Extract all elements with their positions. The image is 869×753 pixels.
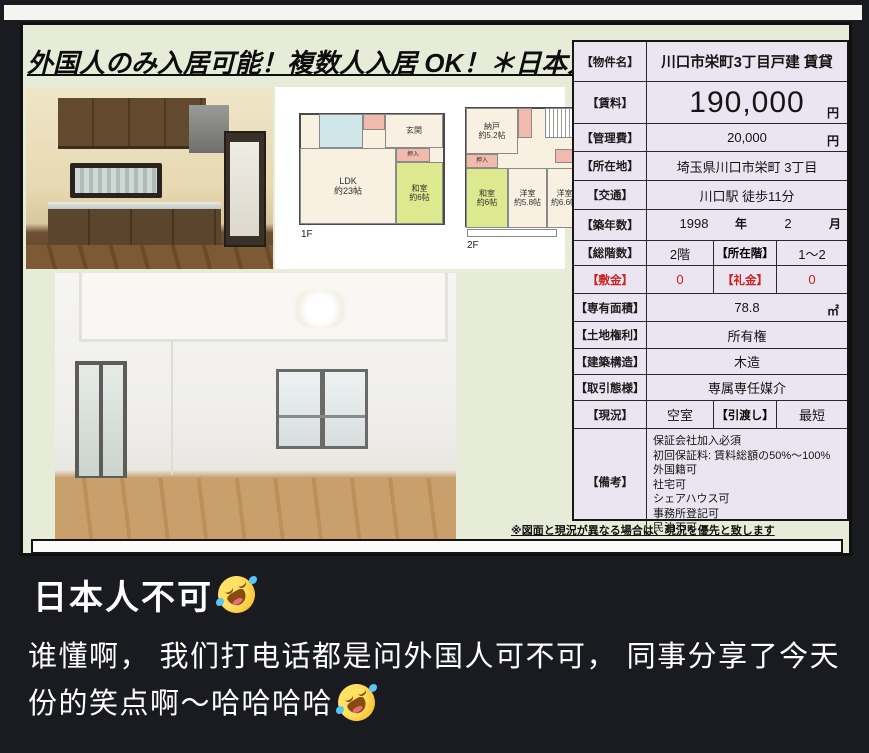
- row-property-name: 【物件名】 川口市栄町3丁目戸建 賃貸: [574, 42, 847, 82]
- row-remarks: 【備考】 保証会社加入必須 初回保証料: 賃料総額の50%～100% 外国籍可 …: [574, 429, 847, 536]
- row-transaction: 【取引態様】 専属専任媒介: [574, 375, 847, 401]
- property-spec-table: 【物件名】 川口市栄町3丁目戸建 賃貸 【賃料】 190,000 円 【管理費】…: [572, 40, 849, 521]
- caption-line2-text: 谁懂啊， 我们打电话都是问外国人可不可， 同事分享了今天份的笑点啊～哈哈哈哈: [28, 641, 840, 720]
- total-floors-label: 【総階数】: [574, 241, 647, 265]
- status-value: 空室: [647, 401, 713, 428]
- living-window-left: [75, 361, 127, 481]
- kitchen-window: [70, 163, 161, 198]
- living-wood-floor: [55, 478, 456, 539]
- floorplan-2f: 納戸 約5.2帖 押入 和室 約6帖 洋室 約5.8帖 洋室 約6.6帖: [465, 107, 581, 227]
- floorplan-1f-wc: [363, 114, 385, 130]
- floorplan-2f-closet-top: [518, 108, 532, 138]
- area-value: 78.8: [734, 300, 759, 315]
- built-year-cell: 1998 年 2 月: [647, 210, 847, 240]
- located-floor-value: 1～2: [777, 241, 847, 265]
- top-white-strip: [4, 5, 862, 20]
- floorplan-2f-nando: 納戸 約5.2帖: [466, 108, 518, 154]
- property-name-label: 【物件名】: [574, 42, 647, 81]
- remarks-value: 保証会社加入必須 初回保証料: 賃料総額の50%～100% 外国籍可 社宅可 シ…: [647, 429, 847, 536]
- kitchen-door-glass: [230, 142, 259, 236]
- living-room-photo: [55, 273, 456, 539]
- kitchen-photo: [26, 87, 273, 269]
- structure-value: 木造: [647, 349, 847, 374]
- built-year-value: 1998: [653, 216, 735, 231]
- key-money-label: 【礼金】: [713, 266, 777, 293]
- built-month-value: 2: [747, 216, 829, 231]
- rofl-emoji-icon: [218, 576, 255, 613]
- location-label: 【所在地】: [574, 152, 647, 180]
- kitchen-range-hood: [189, 105, 229, 152]
- row-land-rights: 【土地権利】 所有権: [574, 322, 847, 349]
- row-management-fee: 【管理費】 20,000 円: [574, 124, 847, 152]
- location-value: 埼玉県川口市栄町 3丁目: [647, 152, 847, 180]
- row-floors: 【総階数】 2階 【所在階】 1～2: [574, 241, 847, 266]
- row-transport: 【交通】 川口駅 徒歩11分: [574, 181, 847, 210]
- structure-label: 【建築構造】: [574, 349, 647, 374]
- living-wall-corner: [171, 342, 173, 475]
- handover-value: 最短: [777, 401, 847, 428]
- management-fee-unit: 円: [827, 132, 839, 149]
- floorplan-1f-ldk: LDK 約23帖: [300, 148, 396, 224]
- transport-value: 川口駅 徒歩11分: [647, 181, 847, 209]
- caption-line1: 日本人不可: [33, 570, 255, 619]
- property-flyer: 外国人のみ入居可能！複数人入居 OK！＊日本人不可 玄関 LDK 約23帖 押入…: [20, 22, 852, 556]
- floorplan-2f-label: 2F: [467, 240, 479, 251]
- deposit-label: 【敷金】: [574, 266, 647, 293]
- floorplan-2f-oshiire: 押入: [466, 154, 498, 168]
- built-year-unit: 年: [735, 215, 747, 232]
- floorplan-1f-label: 1F: [301, 229, 313, 240]
- management-fee-cell: 20,000 円: [647, 124, 847, 151]
- row-rent: 【賃料】 190,000 円: [574, 82, 847, 124]
- remarks-label: 【備考】: [574, 429, 647, 536]
- built-month-unit: 月: [829, 215, 841, 232]
- area-label: 【専有面積】: [574, 294, 647, 321]
- row-location: 【所在地】 埼玉県川口市栄町 3丁目: [574, 152, 847, 181]
- floorplan-1f: 玄関 LDK 約23帖 押入 和室 約6帖: [299, 113, 445, 225]
- transaction-label: 【取引態様】: [574, 375, 647, 400]
- rent-value-cell: 190,000 円: [647, 82, 847, 123]
- flyer-title: 外国人のみ入居可能！複数人入居 OK！＊日本人不可: [27, 43, 579, 80]
- built-year-label: 【築年数】: [574, 210, 647, 240]
- deposit-value: 0: [647, 266, 713, 293]
- flyer-footnote: ※図面と現況が異なる場合は、現況を優先と致します: [511, 522, 849, 538]
- rent-unit: 円: [827, 104, 839, 121]
- kitchen-lower-cabinets: [48, 209, 221, 249]
- handover-label: 【引渡し】: [713, 401, 777, 428]
- management-fee-label: 【管理費】: [574, 124, 647, 151]
- transport-label: 【交通】: [574, 181, 647, 209]
- kitchen-door: [224, 131, 266, 247]
- row-structure: 【建築構造】 木造: [574, 349, 847, 375]
- living-window-right: [276, 369, 368, 449]
- key-money-value: 0: [777, 266, 847, 293]
- living-ceiling: [79, 273, 448, 342]
- area-cell: 78.8 ㎡: [647, 294, 847, 321]
- floorplan-panel: 玄関 LDK 約23帖 押入 和室 約6帖 1F 納戸 約5.2帖 押入 和室 …: [275, 87, 565, 269]
- management-fee-value: 20,000: [727, 130, 767, 145]
- row-deposit: 【敷金】 0 【礼金】 0: [574, 266, 847, 294]
- property-name-value: 川口市栄町3丁目戸建 賃貸: [647, 42, 847, 81]
- row-status: 【現況】 空室 【引渡し】 最短: [574, 401, 847, 429]
- transaction-value: 専属専任媒介: [647, 375, 847, 400]
- status-label: 【現況】: [574, 401, 647, 428]
- row-area: 【専有面積】 78.8 ㎡: [574, 294, 847, 322]
- total-floors-value: 2階: [647, 241, 713, 265]
- kitchen-floor: [26, 245, 273, 269]
- floorplan-2f-yoshitsu1: 洋室 約5.8帖: [508, 168, 547, 228]
- floorplan-1f-oshiire: 押入: [396, 148, 430, 162]
- floorplan-1f-genkan: 玄関: [385, 114, 443, 148]
- caption-line1-text: 日本人不可: [33, 570, 213, 619]
- floorplan-2f-balcony: [467, 229, 557, 237]
- post-screenshot: 外国人のみ入居可能！複数人入居 OK！＊日本人不可 玄関 LDK 約23帖 押入…: [0, 0, 869, 753]
- row-built-year: 【築年数】 1998 年 2 月: [574, 210, 847, 241]
- flyer-bottom-bar: [31, 539, 843, 554]
- kitchen-upper-cabinets: [58, 98, 206, 149]
- floorplan-2f-washitsu: 和室 約6帖: [466, 168, 508, 228]
- land-rights-label: 【土地権利】: [574, 322, 647, 348]
- rent-value: 190,000: [689, 86, 804, 120]
- floorplan-1f-washitsu: 和室 約6帖: [396, 162, 443, 224]
- rent-label: 【賃料】: [574, 82, 647, 123]
- living-ceiling-light: [288, 289, 352, 329]
- area-unit: ㎡: [827, 302, 839, 319]
- caption-line2: 谁懂啊， 我们打电话都是问外国人可不可， 同事分享了今天份的笑点啊～哈哈哈哈: [28, 634, 850, 728]
- land-rights-value: 所有権: [647, 322, 847, 348]
- located-floor-label: 【所在階】: [713, 241, 777, 265]
- rofl-emoji-icon-2: [338, 684, 375, 721]
- floorplan-1f-bath: [319, 114, 363, 148]
